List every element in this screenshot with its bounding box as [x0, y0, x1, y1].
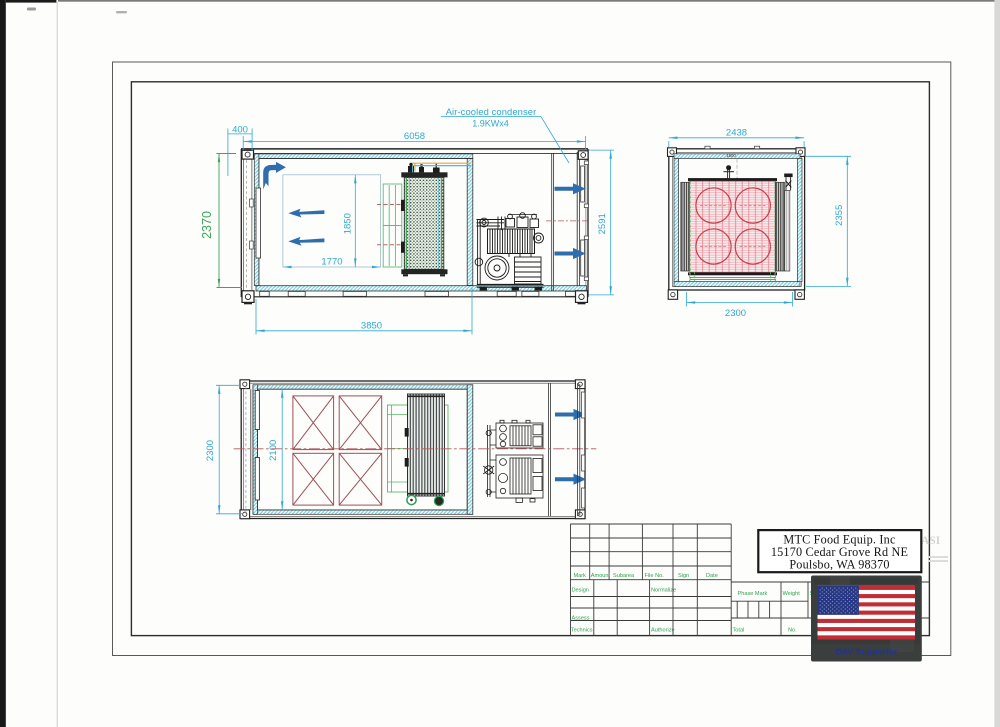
svg-text:Authorize: Authorize	[651, 628, 675, 634]
svg-text:Poulsbo, WA 98370: Poulsbo, WA 98370	[789, 558, 889, 572]
svg-text:2300: 2300	[205, 440, 216, 461]
svg-text:Mark: Mark	[574, 573, 587, 579]
svg-text:2355: 2355	[834, 205, 845, 226]
svg-text:1.9KWx4: 1.9KWx4	[472, 118, 509, 128]
svg-text:1500: 1500	[726, 153, 736, 158]
svg-text:Sign: Sign	[678, 573, 689, 579]
svg-text:ASI: ASI	[921, 535, 941, 547]
svg-text:Phase Mark: Phase Mark	[738, 591, 768, 597]
svg-text:Amount: Amount	[591, 573, 611, 579]
svg-text:Normalize: Normalize	[651, 588, 676, 594]
svg-text:1850: 1850	[343, 213, 354, 234]
svg-text:Design: Design	[572, 588, 589, 594]
svg-text:2438: 2438	[726, 127, 747, 138]
svg-text:1770: 1770	[321, 256, 342, 267]
svg-text:Total: Total	[733, 628, 745, 634]
svg-text:2591: 2591	[597, 213, 608, 234]
svg-text:No.: No.	[788, 628, 797, 634]
svg-text:2100: 2100	[268, 440, 279, 461]
svg-text:Assess: Assess	[572, 615, 590, 621]
svg-text:DAV Supporter: DAV Supporter	[835, 647, 898, 657]
svg-text:File No.: File No.	[645, 573, 665, 579]
svg-text:400: 400	[232, 124, 248, 135]
svg-text:3850: 3850	[361, 321, 382, 332]
svg-text:Date: Date	[706, 573, 718, 579]
svg-text:2370: 2370	[200, 211, 214, 239]
svg-text:2300: 2300	[725, 308, 746, 319]
svg-text:Weight: Weight	[783, 591, 801, 597]
svg-text:Technics: Technics	[571, 628, 593, 634]
svg-text:6058: 6058	[404, 131, 425, 142]
svg-text:Air-cooled condenser: Air-cooled condenser	[446, 106, 537, 117]
svg-text:Subarea: Subarea	[613, 573, 635, 579]
